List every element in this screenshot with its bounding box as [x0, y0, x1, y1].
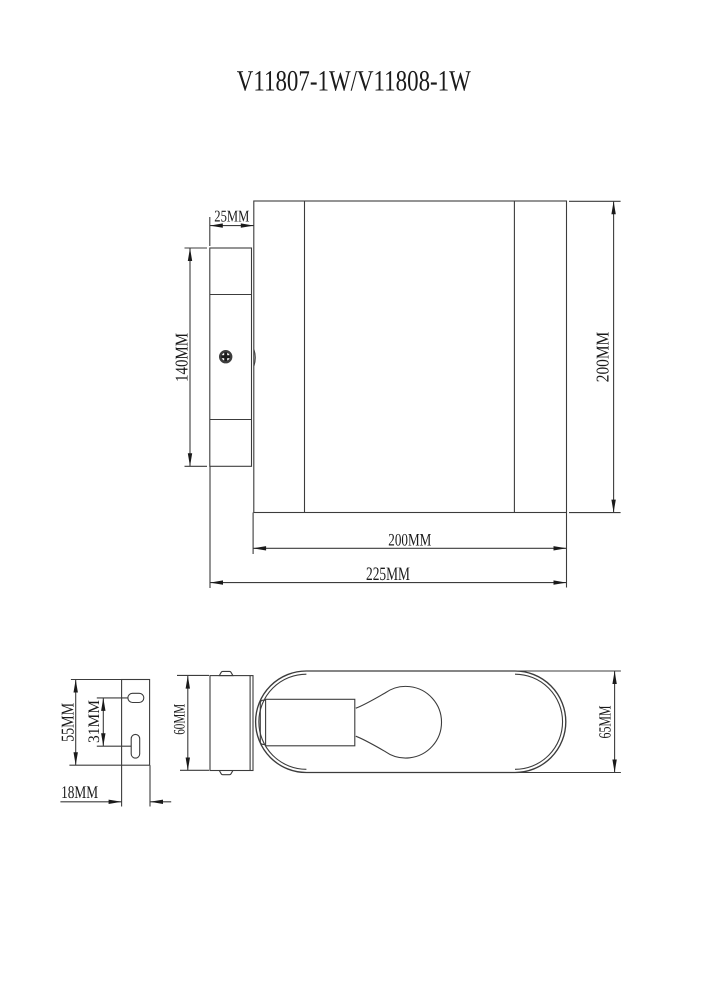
svg-text:200MM: 200MM	[388, 530, 431, 550]
svg-text:25MM: 25MM	[214, 207, 249, 226]
svg-text:18MM: 18MM	[61, 782, 98, 802]
svg-text:200MM: 200MM	[593, 332, 613, 383]
svg-text:31MM: 31MM	[86, 700, 103, 743]
svg-text:140MM: 140MM	[171, 333, 191, 382]
svg-text:60MM: 60MM	[171, 704, 188, 735]
svg-text:225MM: 225MM	[366, 564, 410, 585]
svg-text:65MM: 65MM	[596, 706, 615, 739]
svg-text:55MM: 55MM	[57, 703, 77, 742]
svg-text:V11807-1W/V11808-1W: V11807-1W/V11808-1W	[237, 66, 471, 98]
